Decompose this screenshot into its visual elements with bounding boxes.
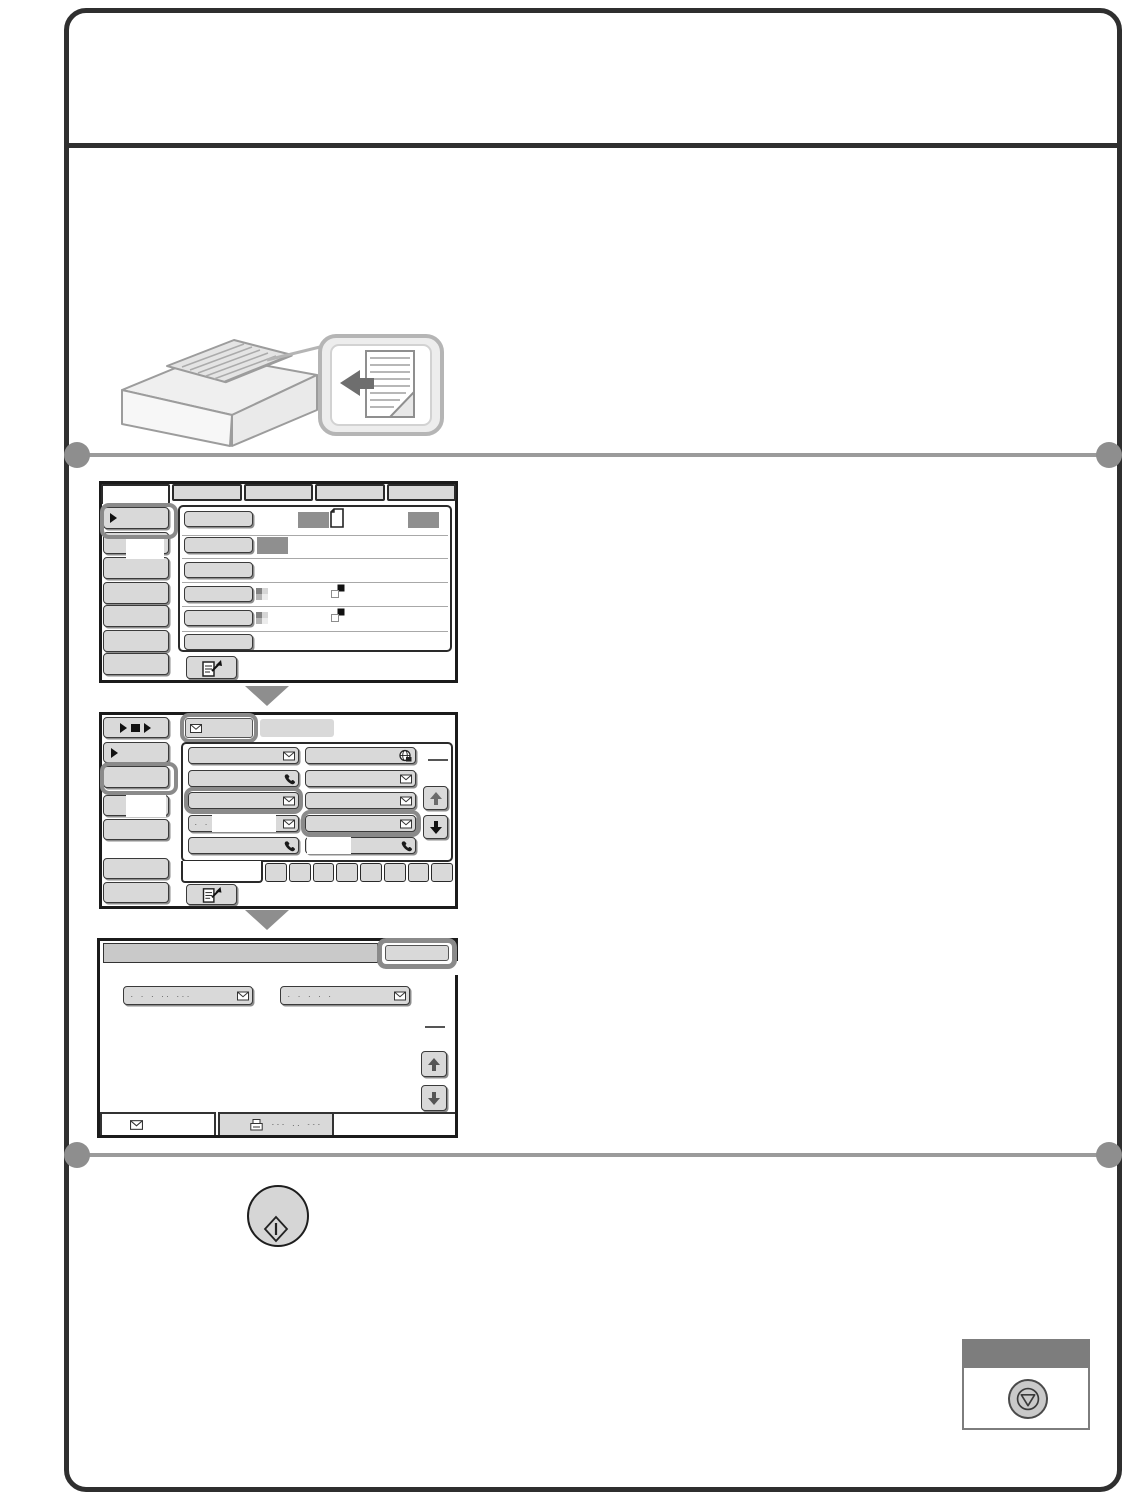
envelope-icon — [394, 991, 406, 1000]
up-arrow-icon — [428, 1058, 440, 1071]
sidebar-button-6[interactable] — [103, 858, 169, 879]
step-divider-dot-right — [1096, 1142, 1122, 1168]
settings-panel — [178, 505, 452, 652]
highlight-ring-sidebar-3 — [100, 762, 178, 795]
flow-down-arrow — [245, 686, 289, 706]
bottom-tab-selected[interactable] — [100, 1112, 216, 1135]
highlight-ring-address-display — [180, 713, 258, 743]
option-button-3[interactable] — [184, 562, 253, 578]
sidebar-button-6[interactable] — [103, 630, 169, 652]
copier-illustration — [112, 330, 457, 448]
option-button-5[interactable] — [184, 610, 253, 626]
row-separator — [182, 606, 448, 607]
step-divider-line — [67, 1153, 1119, 1157]
play-icon — [111, 748, 118, 758]
callout-mask — [126, 537, 164, 559]
envelope-icon — [237, 991, 249, 1000]
option-button-1[interactable] — [184, 511, 253, 527]
highlight-ring-sidebar-1 — [100, 503, 178, 539]
manual-page: . . . .. .... — [0, 0, 1126, 1500]
envelope-icon — [400, 796, 412, 805]
index-tab[interactable] — [265, 863, 287, 882]
address-display-button[interactable] — [260, 719, 334, 737]
highlight-ring-ok — [377, 938, 457, 969]
page-indicator — [428, 759, 448, 761]
index-tab[interactable] — [313, 863, 335, 882]
flow-down-arrow — [245, 910, 289, 930]
two-sided-icon — [331, 608, 345, 623]
blanked-label: . . . .. ... — [130, 993, 191, 999]
destination-chip[interactable]: . . . . . — [280, 986, 410, 1005]
one-touch-key[interactable] — [188, 837, 299, 854]
checkerboard-icon — [256, 612, 268, 624]
scroll-down-button[interactable] — [423, 815, 448, 839]
address-list-panel: . . . .. .... — [181, 742, 453, 862]
title-bar — [103, 943, 378, 963]
envelope-icon — [283, 751, 295, 760]
step-divider-line — [67, 453, 1119, 457]
sidebar-button-2[interactable] — [103, 742, 169, 763]
callout-mask — [126, 794, 166, 817]
scroll-down-button[interactable] — [421, 1085, 447, 1111]
index-tab[interactable] — [431, 863, 453, 882]
one-touch-key[interactable] — [188, 770, 299, 787]
sidebar-button-7[interactable] — [103, 653, 169, 675]
preview-button[interactable] — [186, 656, 237, 679]
document-icon — [329, 508, 345, 528]
play-square-play-icon — [120, 723, 152, 733]
tab-selected[interactable] — [101, 484, 170, 504]
sidebar-button-4[interactable] — [103, 582, 169, 604]
phone-icon — [283, 773, 295, 785]
highlight-ring-one-touch-left — [184, 787, 303, 814]
stop-key[interactable] — [1008, 1379, 1048, 1419]
tab-3[interactable] — [244, 484, 313, 501]
sidebar-button-7[interactable] — [103, 882, 169, 903]
fax-machine-icon — [250, 1119, 263, 1131]
touch-screen-address-book: . . . .. .... — [99, 712, 458, 909]
tab-5[interactable] — [387, 484, 456, 501]
touch-screen-address-review: . . . .. ... . . . . . --- .. --- — [97, 938, 458, 1138]
step-divider-dot-left — [64, 442, 90, 468]
sidebar-button-5[interactable] — [103, 819, 169, 840]
index-tab[interactable] — [384, 863, 406, 882]
envelope-icon — [283, 819, 295, 828]
down-arrow-icon — [430, 821, 442, 834]
tab-row-line — [334, 1112, 455, 1114]
page-indicator — [425, 1026, 445, 1028]
index-tab[interactable] — [408, 863, 430, 882]
row-separator — [182, 631, 448, 632]
header-divider — [64, 143, 1122, 148]
phone-icon — [283, 840, 295, 852]
sidebar-resend-button[interactable] — [103, 717, 169, 738]
option-button-4[interactable] — [184, 586, 253, 602]
start-key[interactable] — [247, 1185, 309, 1247]
stop-panel-header — [964, 1341, 1088, 1368]
start-key-icon — [249, 1187, 307, 1245]
index-tab[interactable] — [360, 863, 382, 882]
step-divider-dot-right — [1096, 442, 1122, 468]
one-touch-key[interactable] — [305, 770, 416, 787]
tab-2[interactable] — [172, 484, 241, 501]
step-divider-dot-left — [64, 1142, 90, 1168]
envelope-icon — [400, 774, 412, 783]
preview-icon — [201, 886, 223, 903]
option-button-6[interactable] — [184, 634, 253, 650]
index-tab-row — [265, 863, 453, 882]
blanked-label: --- .. --- — [271, 1122, 322, 1128]
preview-icon — [201, 659, 223, 677]
mode-tab-bar — [101, 484, 456, 501]
sidebar-button-5[interactable] — [103, 605, 169, 627]
internet-fax-icon — [399, 749, 412, 762]
row-separator — [182, 535, 448, 536]
index-tab-selected[interactable] — [181, 861, 263, 883]
callout-mask — [307, 835, 351, 854]
preview-button[interactable] — [186, 884, 237, 905]
up-arrow-icon — [430, 792, 442, 805]
touch-screen-mode-settings — [99, 481, 458, 683]
option-button-2[interactable] — [184, 537, 253, 553]
phone-icon — [400, 840, 412, 852]
stop-key-panel — [962, 1339, 1090, 1430]
sidebar-button-3[interactable] — [103, 557, 169, 579]
bottom-tab-2[interactable]: --- .. --- — [218, 1112, 334, 1135]
value-swatch — [408, 512, 439, 528]
row-separator — [182, 582, 448, 583]
destination-chip[interactable]: . . . .. ... — [123, 986, 253, 1005]
value-swatch — [257, 537, 288, 554]
one-touch-key[interactable] — [305, 792, 416, 809]
highlight-ring-one-touch-right — [301, 810, 421, 837]
down-arrow-icon — [428, 1092, 440, 1105]
one-touch-key[interactable] — [305, 747, 416, 764]
two-sided-icon — [331, 584, 345, 599]
row-separator — [182, 558, 448, 559]
tab-4[interactable] — [315, 484, 384, 501]
one-touch-key[interactable] — [188, 747, 299, 764]
scroll-up-button[interactable] — [421, 1051, 447, 1077]
index-tab[interactable] — [289, 863, 311, 882]
stop-key-icon — [1013, 1384, 1043, 1414]
index-tab[interactable] — [336, 863, 358, 882]
checkerboard-icon — [256, 588, 268, 600]
envelope-icon — [130, 1120, 143, 1130]
callout-mask — [212, 812, 276, 832]
value-swatch — [298, 512, 329, 528]
scroll-up-button[interactable] — [423, 786, 448, 810]
blanked-label: . . . . . — [287, 993, 333, 999]
